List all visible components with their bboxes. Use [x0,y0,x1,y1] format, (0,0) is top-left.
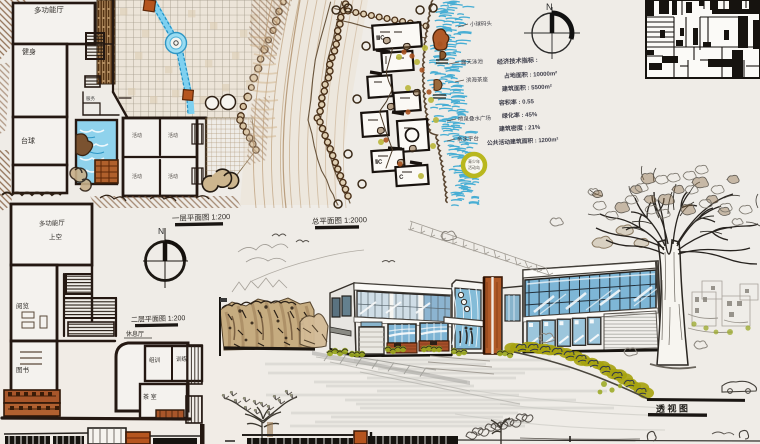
svg-text:健身: 健身 [22,47,36,56]
svg-text:活动岛: 活动岛 [468,164,480,170]
svg-text:透 视 图: 透 视 图 [656,402,688,414]
svg-text:N: N [546,2,553,12]
svg-text:活动: 活动 [168,132,178,139]
svg-text:活动: 活动 [168,173,178,180]
svg-text:图书: 图书 [16,365,30,374]
svg-text:训练: 训练 [176,355,188,363]
svg-text:上空: 上空 [49,232,63,241]
svg-text:活动: 活动 [132,132,142,139]
svg-text:台球: 台球 [21,136,35,145]
svg-text:茶 室: 茶 室 [143,393,157,401]
svg-text:活动: 活动 [132,173,142,180]
svg-text:青少年: 青少年 [468,158,480,164]
svg-text:总平面图 1:2000: 总平面图 1:2000 [312,214,367,226]
svg-text:服务: 服务 [86,95,95,102]
svg-text:休息厅: 休息厅 [126,330,144,338]
svg-text:ⅡC: ⅡC [375,158,383,166]
svg-text:组训: 组训 [149,356,161,364]
svg-text:N: N [158,226,164,236]
svg-text:阅览: 阅览 [16,301,30,310]
svg-text:多功能厅: 多功能厅 [34,4,65,15]
